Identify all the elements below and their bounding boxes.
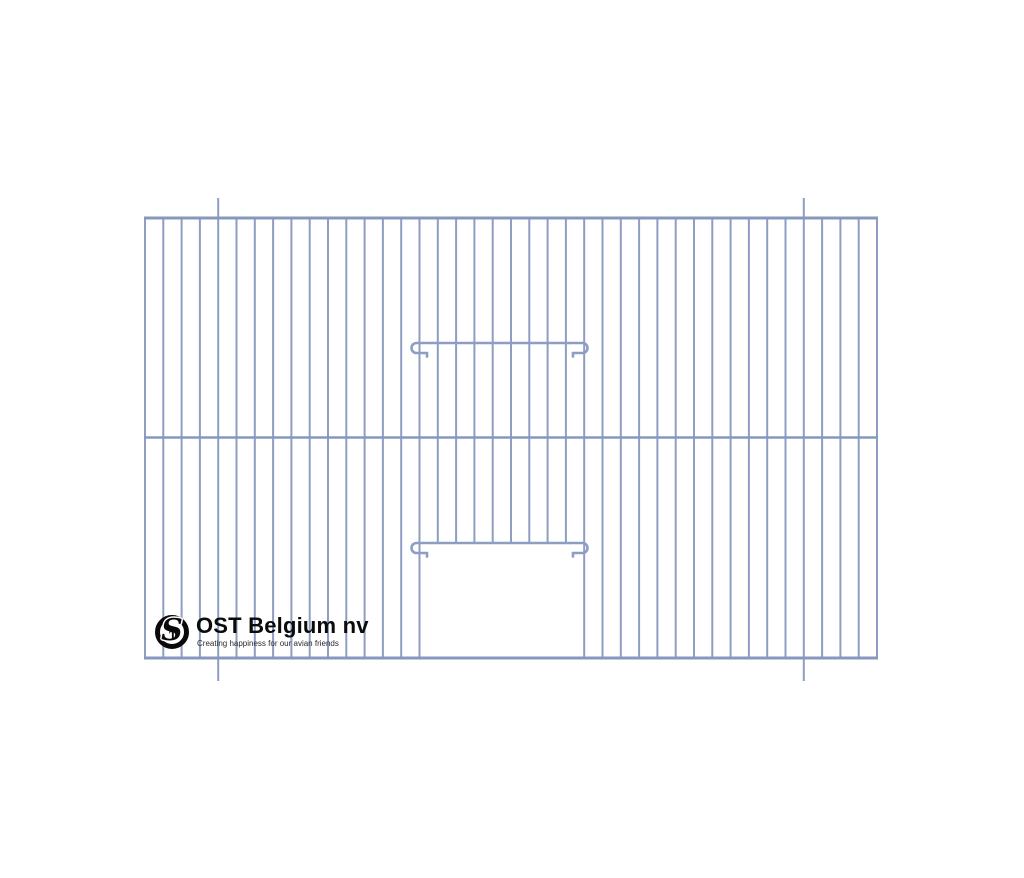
door-latch-bar [412, 543, 588, 557]
drawing-canvas: S T OST Belgium nv Creating happiness fo… [0, 0, 1024, 878]
cage-front-panel-drawing [0, 0, 1024, 878]
